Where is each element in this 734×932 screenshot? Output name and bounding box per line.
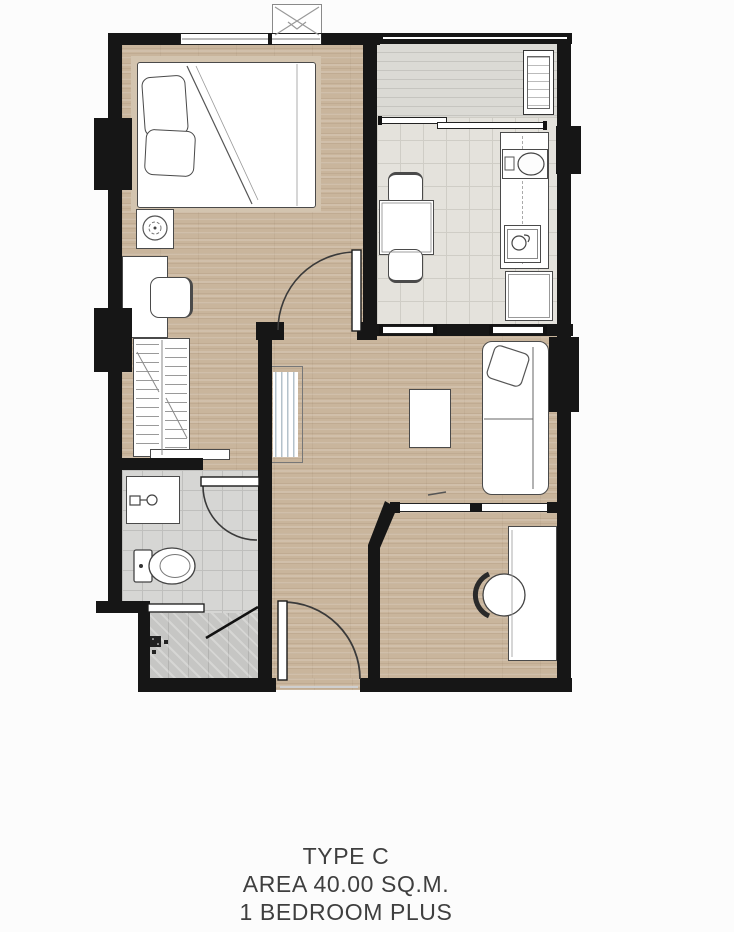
roof-ac-x-icon (275, 7, 319, 35)
floor-plan-page: TYPE C AREA 40.00 SQ.M. 1 BEDROOM PLUS (0, 0, 734, 932)
cooktop-pot-icon (512, 235, 529, 250)
plant-icon (143, 216, 167, 240)
partition-handle-mark (428, 492, 446, 495)
sofa-cushion (486, 344, 531, 387)
plan-detail-overlay (0, 0, 734, 932)
bathroom-door-leaf (201, 477, 259, 486)
shower-screen-diagonal (206, 607, 258, 638)
unit-type-label: TYPE C (0, 842, 692, 870)
dining-table-inner (382, 203, 431, 252)
wall-plus-room-chamfer (368, 501, 397, 680)
shower-screen-fixed (148, 604, 204, 612)
bathroom-door-arc (203, 486, 257, 540)
bedroom-door-leaf (352, 250, 361, 331)
floor-drain-icon (150, 636, 168, 654)
entrance-door-leaf (278, 601, 287, 680)
bedroom-door-arc (278, 252, 356, 330)
window-mullion (268, 33, 272, 45)
desk-chair-icon (475, 574, 525, 616)
sliding-track-caps (378, 116, 547, 335)
unit-layout-label: 1 BEDROOM PLUS (0, 898, 692, 926)
entrance-door-arc (283, 602, 360, 679)
bed-duvet-lines (187, 64, 297, 206)
wardrobe-detail-lines (137, 340, 187, 455)
washbasin-faucet-icon (130, 495, 157, 505)
title-block: TYPE C AREA 40.00 SQ.M. 1 BEDROOM PLUS (0, 842, 692, 926)
kitchen-sink-icon (505, 153, 544, 175)
toilet-icon (134, 548, 195, 584)
unit-area-label: AREA 40.00 SQ.M. (0, 870, 692, 898)
